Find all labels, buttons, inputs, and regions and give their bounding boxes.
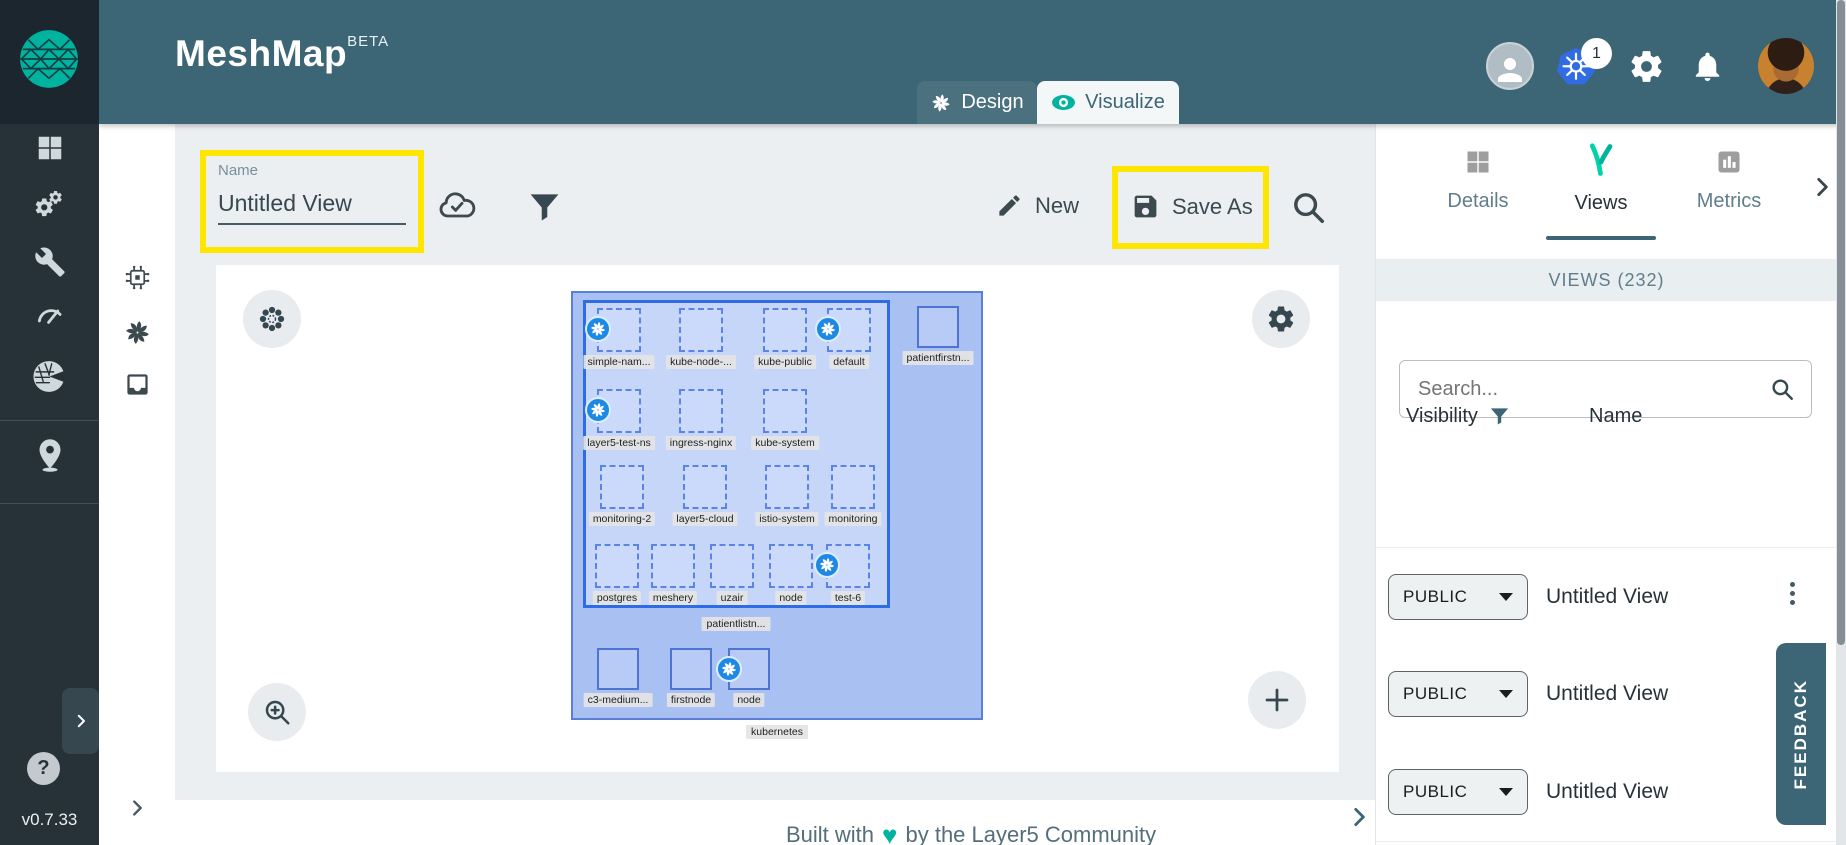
- meshery-badge-icon: [585, 397, 611, 423]
- metrics-chart-icon: [1715, 148, 1743, 176]
- app-title: MeshMapBETA: [175, 33, 389, 75]
- version-label: v0.7.33: [0, 810, 99, 830]
- view-list-item[interactable]: PUBLIC Untitled View: [1376, 547, 1837, 647]
- drawer-icon[interactable]: [99, 371, 175, 398]
- namespace-node[interactable]: monitoring: [831, 465, 875, 509]
- visibility-value: PUBLIC: [1403, 684, 1467, 704]
- feedback-label: FEEDBACK: [1791, 679, 1811, 789]
- scrollbar-thumb[interactable]: [1837, 0, 1845, 645]
- node-label: node: [775, 591, 806, 605]
- footer-suffix: by the Layer5 Community: [905, 822, 1156, 845]
- node-label: monitoring-2: [589, 512, 655, 526]
- row-menu-kebab-icon[interactable]: [1790, 582, 1795, 587]
- namespace-node[interactable]: uzair: [710, 544, 754, 588]
- caret-down-icon: [1499, 690, 1513, 698]
- floppy-save-icon: [1131, 192, 1160, 221]
- namespace-node[interactable]: test-6: [826, 544, 870, 588]
- user-avatar[interactable]: [1758, 38, 1814, 94]
- caret-down-icon: [1499, 788, 1513, 796]
- namespace-node[interactable]: meshery: [651, 544, 695, 588]
- namespace-node[interactable]: ingress-nginx: [679, 389, 723, 433]
- node-label: firstnode: [667, 693, 715, 707]
- sidebar-divider: [0, 503, 99, 504]
- column-name[interactable]: Name: [1589, 405, 1642, 428]
- help-button[interactable]: ?: [27, 752, 60, 785]
- canvas-search-icon[interactable]: [1289, 188, 1327, 226]
- tab-details[interactable]: Details: [1423, 148, 1533, 213]
- view-list-item[interactable]: PUBLIC Untitled View: [1376, 645, 1837, 744]
- node-label: meshery: [649, 591, 697, 605]
- node-label: kube-system: [751, 436, 819, 450]
- visualize-eye-icon: [1051, 90, 1076, 115]
- views-y-icon: [1583, 142, 1619, 178]
- left-sidebar: ? v0.7.33: [0, 0, 99, 845]
- footer-strip: [175, 800, 1375, 845]
- visibility-header-label: Visibility: [1406, 405, 1478, 428]
- layer5-logo-icon[interactable]: [16, 26, 82, 92]
- strip-expand-chevron-icon[interactable]: [99, 797, 175, 819]
- views-count-label: VIEWS (232): [1548, 270, 1664, 291]
- context-count: 1: [1592, 45, 1601, 63]
- tab-metrics-label: Metrics: [1697, 190, 1761, 213]
- view-name: Untitled View: [1546, 645, 1668, 743]
- canvas-add-button[interactable]: [1248, 671, 1306, 729]
- namespace-node[interactable]: kube-node-...: [679, 308, 723, 352]
- settings-gear-icon[interactable]: [1628, 48, 1665, 85]
- node-label: layer5-cloud: [672, 512, 737, 526]
- node-label: postgres: [593, 591, 641, 605]
- meshery-badge-icon: [716, 656, 742, 682]
- beta-tag: BETA: [347, 33, 389, 50]
- sidebar-expand-toggle[interactable]: [62, 688, 99, 754]
- namespace-node[interactable]: monitoring-2: [600, 465, 644, 509]
- node-label: ingress-nginx: [666, 436, 736, 450]
- tab-visualize[interactable]: Visualize: [1037, 81, 1179, 124]
- namespace-node[interactable]: istio-system: [765, 465, 809, 509]
- save-as-button[interactable]: Save As: [1131, 192, 1253, 221]
- meshery-badge-icon: [585, 316, 611, 342]
- node-label: patientfirstn...: [902, 351, 973, 365]
- node-label: monitoring: [824, 512, 881, 526]
- views-section-header: VIEWS (232): [1376, 259, 1837, 301]
- sidebar-item-extensions[interactable]: [0, 358, 99, 395]
- node-label: node: [733, 693, 764, 707]
- sidebar-item-meshmap[interactable]: [0, 437, 99, 473]
- canvas-settings-button[interactable]: [1252, 290, 1310, 348]
- app-title-text: MeshMap: [175, 33, 347, 74]
- sidebar-item-dashboard[interactable]: [0, 133, 99, 163]
- tab-metrics[interactable]: Metrics: [1674, 148, 1784, 213]
- sidebar-item-configuration[interactable]: [0, 246, 99, 278]
- k8s-node[interactable]: c3-medium...: [597, 648, 639, 690]
- canvas-zoom-button[interactable]: [248, 683, 306, 741]
- new-button[interactable]: New: [996, 192, 1079, 219]
- canvas-modules-button[interactable]: [243, 290, 301, 348]
- anonymous-avatar[interactable]: [1486, 42, 1534, 90]
- footer-prefix: Built with: [786, 822, 874, 845]
- namespace-node[interactable]: layer5-cloud: [683, 465, 727, 509]
- k8s-node[interactable]: node: [728, 648, 770, 690]
- views-search-input[interactable]: [1400, 378, 1769, 401]
- namespace-node[interactable]: postgres: [595, 544, 639, 588]
- caret-down-icon: [1499, 593, 1513, 601]
- details-grid-icon: [1464, 148, 1492, 176]
- visibility-value: PUBLIC: [1403, 587, 1467, 607]
- name-header-label: Name: [1589, 405, 1642, 428]
- k8s-node[interactable]: firstnode: [670, 648, 712, 690]
- design-spiral-icon: [930, 92, 952, 114]
- sidebar-divider: [0, 420, 99, 421]
- node-label: layer5-test-ns: [583, 436, 655, 450]
- panel-more-chevron-icon[interactable]: [1809, 174, 1835, 200]
- namespace-node[interactable]: default: [827, 308, 871, 352]
- namespace-node[interactable]: simple-nam...: [597, 308, 641, 352]
- help-label: ?: [37, 757, 49, 780]
- page-scrollbar[interactable]: [1836, 0, 1846, 845]
- header: MeshMapBETA Design Visualize 1: [99, 0, 1846, 124]
- outer-cluster-label: kubernetes: [746, 725, 808, 739]
- node-label: simple-nam...: [583, 355, 654, 369]
- view-name-input[interactable]: [218, 188, 406, 225]
- tab-visualize-label: Visualize: [1085, 91, 1165, 114]
- visibility-select[interactable]: PUBLIC: [1388, 671, 1528, 717]
- filter-funnel-icon[interactable]: [526, 189, 563, 226]
- notifications-bell-icon[interactable]: [1690, 49, 1725, 84]
- heart-icon: ♥: [882, 825, 897, 845]
- node-label: kube-public: [754, 355, 816, 369]
- tab-design[interactable]: Design: [917, 81, 1037, 124]
- node-label: test-6: [831, 591, 865, 605]
- column-visibility[interactable]: Visibility: [1406, 405, 1511, 428]
- node-label: istio-system: [755, 512, 818, 526]
- pencil-icon: [996, 192, 1023, 219]
- footer-expand-chevron-icon[interactable]: [1346, 804, 1372, 830]
- meshery-badge-icon: [815, 316, 841, 342]
- plus-icon: [1262, 685, 1292, 715]
- sidebar-item-performance[interactable]: [0, 299, 99, 333]
- namespace-node[interactable]: kube-public: [763, 308, 807, 352]
- flower-dots-icon: [257, 304, 287, 334]
- node-label: default: [829, 355, 869, 369]
- tab-views-label: Views: [1575, 192, 1628, 215]
- gear-icon: [1266, 304, 1296, 334]
- logo-block: [0, 0, 99, 124]
- visibility-select[interactable]: PUBLIC: [1388, 574, 1528, 620]
- search-icon[interactable]: [1769, 376, 1795, 402]
- service-mesh-icon[interactable]: [99, 264, 175, 291]
- namespace-node[interactable]: kube-system: [763, 389, 807, 433]
- node-label: kube-node-...: [666, 355, 736, 369]
- meshery-spiral-icon[interactable]: [99, 318, 175, 347]
- visibility-filter-icon: [1488, 405, 1511, 428]
- context-count-badge: 1: [1581, 38, 1612, 69]
- new-button-label: New: [1035, 193, 1079, 219]
- active-tab-underline: [1546, 236, 1656, 240]
- node-label: c3-medium...: [584, 693, 653, 707]
- namespace-node[interactable]: node: [769, 544, 813, 588]
- sidebar-item-lifecycle[interactable]: [0, 189, 99, 223]
- meshery-badge-icon: [814, 552, 840, 578]
- visibility-value: PUBLIC: [1403, 782, 1467, 802]
- zoom-in-icon: [262, 697, 292, 727]
- name-field-label: Name: [218, 162, 258, 179]
- footer-credit: Built with ♥ by the Layer5 Community: [786, 822, 1156, 845]
- view-list-item[interactable]: PUBLIC Untitled View: [1376, 743, 1837, 842]
- tab-details-label: Details: [1447, 190, 1508, 213]
- inner-cluster-label: patientlistn...: [702, 617, 771, 631]
- node-label: uzair: [717, 591, 748, 605]
- visibility-select[interactable]: PUBLIC: [1388, 769, 1528, 815]
- namespace-node[interactable]: layer5-test-ns: [597, 389, 641, 433]
- save-as-label: Save As: [1172, 194, 1253, 220]
- tab-views[interactable]: Views: [1546, 142, 1656, 215]
- meshmap-app: ? v0.7.33 WA MeshMapBETA Design Visualiz…: [0, 0, 1846, 845]
- feedback-button[interactable]: FEEDBACK: [1776, 643, 1826, 825]
- view-name: Untitled View: [1546, 548, 1668, 646]
- person-icon: [1492, 52, 1528, 88]
- tab-design-label: Design: [961, 91, 1023, 114]
- patientfirst-node[interactable]: patientfirstn...: [917, 306, 959, 348]
- view-name: Untitled View: [1546, 743, 1668, 841]
- secondary-toolbar: [99, 124, 175, 845]
- cloud-saved-icon[interactable]: [435, 186, 477, 226]
